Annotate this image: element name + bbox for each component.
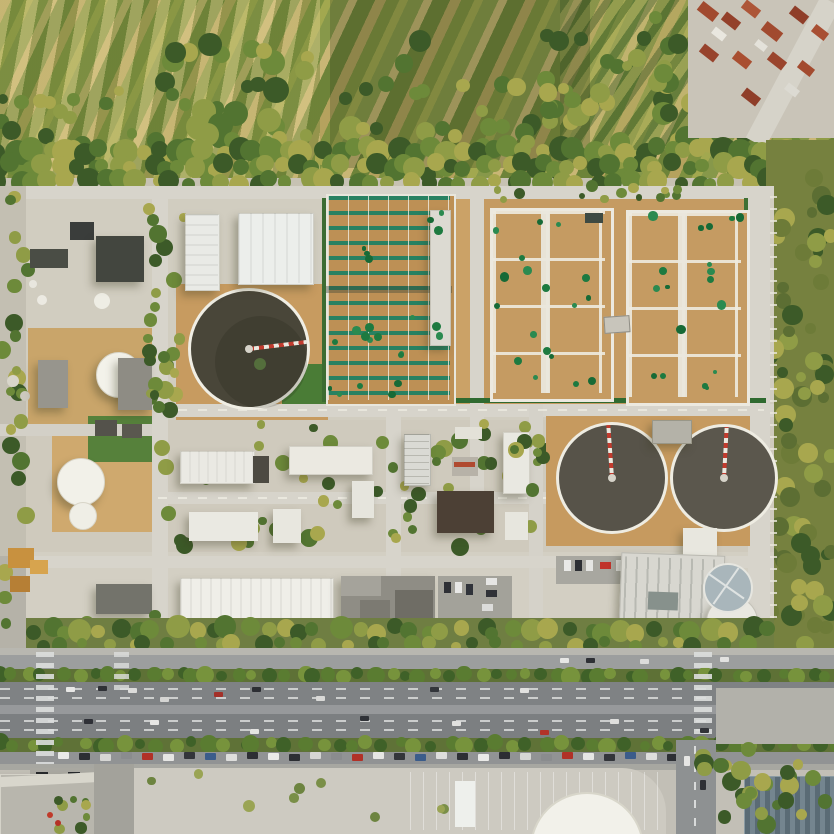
- small-tank: [20, 391, 30, 401]
- parked-car: [586, 560, 593, 571]
- tree: [370, 122, 383, 135]
- crosswalk: [36, 652, 54, 764]
- basin-vegetation: [698, 225, 703, 230]
- gray-building: [96, 584, 152, 614]
- parked-car: [58, 752, 69, 759]
- tree: [359, 82, 373, 96]
- parked-car: [482, 604, 493, 611]
- tree: [532, 434, 546, 448]
- tree: [514, 188, 525, 199]
- basin-vegetation: [439, 210, 445, 216]
- basin-vegetation: [494, 303, 500, 309]
- basin-vegetation: [432, 322, 441, 331]
- tree: [216, 671, 226, 681]
- tree: [754, 773, 771, 790]
- basin-vegetation: [713, 370, 717, 374]
- car: [250, 729, 259, 734]
- tree: [636, 194, 642, 200]
- tree: [388, 668, 400, 680]
- industrial-unit: [30, 560, 48, 574]
- flower-bed: [55, 820, 61, 826]
- filter-basin-corridor: [678, 213, 687, 397]
- basin-vegetation: [660, 373, 666, 379]
- parking-lot: [716, 688, 834, 744]
- white-roof-building: [273, 509, 301, 543]
- tree: [586, 180, 598, 192]
- tree: [540, 101, 558, 119]
- clarifier-hub: [720, 474, 728, 482]
- tree: [425, 741, 436, 752]
- car: [720, 657, 729, 662]
- tree: [89, 139, 107, 157]
- tree: [604, 668, 615, 679]
- basin-vegetation: [436, 332, 443, 339]
- tree: [75, 822, 86, 833]
- tree: [196, 666, 214, 684]
- basin-vegetation: [361, 332, 370, 341]
- tree: [149, 225, 166, 242]
- dark-roof-building: [30, 249, 68, 268]
- tree: [554, 735, 569, 750]
- tree: [622, 61, 632, 71]
- parked-car: [457, 753, 468, 760]
- dark-roof-building: [70, 222, 94, 240]
- tree: [506, 740, 519, 753]
- car: [98, 686, 107, 691]
- tree: [1, 618, 11, 628]
- tree: [741, 742, 756, 757]
- parked-car: [625, 752, 636, 759]
- tree: [579, 193, 585, 199]
- tree: [777, 367, 788, 378]
- tree: [43, 96, 56, 109]
- tree: [814, 480, 831, 497]
- parked-car: [486, 590, 497, 597]
- tree: [377, 637, 389, 649]
- tree: [194, 769, 204, 779]
- tree: [305, 622, 319, 636]
- white-roof-building: [505, 512, 528, 540]
- parked-car: [564, 560, 571, 571]
- satellite-dish: [37, 295, 47, 305]
- road: [94, 764, 134, 834]
- tree: [358, 735, 372, 749]
- parking-ticks: [770, 196, 777, 626]
- basin-dark-unit: [585, 213, 603, 223]
- tree: [456, 79, 469, 92]
- tree: [67, 93, 80, 106]
- car: [66, 687, 75, 692]
- tree: [824, 449, 834, 463]
- storage-dome: [94, 293, 110, 309]
- tree: [807, 207, 818, 218]
- basin-vegetation: [648, 211, 657, 220]
- tree: [571, 737, 585, 751]
- car: [316, 696, 325, 701]
- tree: [617, 737, 631, 751]
- lot-white-structure: [455, 781, 475, 827]
- basin-vegetation: [398, 352, 404, 358]
- parked-car: [575, 560, 582, 571]
- basin-bridge: [603, 315, 630, 334]
- car: [610, 719, 619, 724]
- roof-ridges: [185, 214, 218, 289]
- tree: [318, 739, 330, 751]
- tree: [395, 54, 413, 72]
- tree: [780, 487, 800, 507]
- tree: [391, 533, 401, 543]
- tree: [7, 279, 21, 293]
- parked-car: [247, 752, 258, 759]
- basin-vegetation: [388, 391, 395, 398]
- clarifier-algae: [254, 358, 266, 370]
- tree: [166, 88, 179, 101]
- storage-dome: [57, 458, 105, 506]
- tree: [454, 161, 470, 177]
- satellite-dish: [29, 280, 37, 288]
- tree: [143, 334, 153, 344]
- parked-car: [646, 753, 657, 760]
- parked-car: [604, 754, 615, 761]
- white-roof-building: [189, 512, 258, 541]
- tree: [648, 137, 665, 154]
- pump-building: [652, 420, 692, 444]
- tree: [309, 424, 317, 432]
- tree: [318, 495, 329, 506]
- basin-vegetation: [332, 339, 338, 345]
- tree: [256, 43, 272, 59]
- tree: [454, 620, 470, 636]
- tree: [777, 282, 788, 293]
- basin-vegetation: [362, 246, 366, 250]
- tree: [798, 443, 817, 462]
- tree: [91, 625, 105, 639]
- tree: [689, 139, 707, 157]
- tree: [356, 122, 369, 135]
- tree: [487, 734, 503, 750]
- car: [360, 716, 369, 721]
- parked-car: [455, 582, 462, 593]
- clarifier-hub: [608, 474, 616, 482]
- tree: [599, 636, 610, 647]
- tree: [403, 512, 412, 521]
- car: [640, 659, 649, 664]
- basin-vegetation: [659, 267, 667, 275]
- car: [452, 721, 461, 726]
- tree: [299, 474, 307, 482]
- tree: [757, 669, 771, 683]
- tree: [16, 247, 31, 262]
- tree: [147, 667, 162, 682]
- tree: [805, 323, 816, 334]
- car: [700, 728, 709, 733]
- tree: [673, 185, 682, 194]
- tree: [488, 159, 501, 172]
- brown-roof-building: [437, 491, 494, 533]
- storage-dome: [69, 502, 97, 530]
- industrial-unit: [10, 576, 30, 592]
- car: [430, 687, 439, 692]
- tree: [127, 128, 138, 139]
- roof-ridges: [238, 213, 312, 283]
- tree: [731, 761, 750, 780]
- white-roof-building: [683, 528, 717, 556]
- basin-vegetation: [493, 227, 500, 234]
- parked-car: [121, 752, 132, 759]
- parked-car: [289, 754, 300, 761]
- basin-vegetation: [427, 217, 433, 223]
- tree: [695, 159, 708, 172]
- dark-roof-building: [253, 456, 269, 483]
- basin-vegetation: [707, 268, 714, 275]
- glass-tower-grid: [404, 434, 429, 484]
- tree: [258, 517, 267, 526]
- tree: [321, 667, 336, 682]
- basin-vegetation: [653, 285, 660, 292]
- tree: [637, 31, 651, 45]
- tree: [70, 796, 77, 803]
- basin-vegetation: [537, 219, 543, 225]
- tree: [80, 738, 91, 749]
- parked-car: [486, 578, 497, 585]
- tree: [599, 154, 620, 175]
- parked-car: [226, 754, 237, 761]
- flower-bed: [47, 812, 53, 818]
- car: [540, 730, 549, 735]
- parked-car: [331, 753, 342, 760]
- tree: [100, 666, 116, 682]
- tree: [2, 121, 21, 140]
- tree: [782, 305, 802, 325]
- tree: [5, 195, 15, 205]
- clarifier-hub: [245, 345, 253, 353]
- parked-car: [478, 754, 489, 761]
- tree: [117, 735, 134, 752]
- tree: [198, 33, 221, 56]
- tree: [819, 671, 830, 682]
- white-roof-building: [289, 446, 373, 475]
- basin-vegetation: [573, 381, 579, 387]
- parked-car: [600, 562, 611, 569]
- tree: [416, 84, 430, 98]
- tree: [781, 433, 797, 449]
- car: [560, 658, 569, 663]
- basin-vegetation: [676, 325, 685, 334]
- tree: [83, 813, 90, 820]
- tree: [526, 483, 540, 497]
- tree: [114, 86, 124, 96]
- basin-vegetation: [364, 251, 369, 256]
- tree: [233, 159, 249, 175]
- tree: [813, 595, 833, 615]
- parked-car: [373, 752, 384, 759]
- tree: [534, 668, 547, 681]
- tree: [257, 420, 266, 429]
- tree: [586, 739, 598, 751]
- parked-car: [499, 752, 510, 759]
- tree: [183, 668, 198, 683]
- tree: [507, 78, 525, 96]
- tree: [660, 669, 671, 680]
- tree: [494, 186, 501, 193]
- tree: [818, 794, 832, 808]
- parked-car: [415, 754, 426, 761]
- basin-vegetation: [665, 285, 669, 289]
- car: [586, 658, 595, 663]
- parked-car: [268, 753, 279, 760]
- tree: [12, 452, 30, 470]
- tree: [798, 387, 811, 400]
- tree: [778, 792, 794, 808]
- tree: [374, 739, 387, 752]
- tree: [331, 154, 349, 172]
- tree: [563, 622, 577, 636]
- tree: [4, 440, 15, 451]
- tree: [57, 667, 71, 681]
- tree: [165, 42, 185, 62]
- red-roof-detail: [454, 462, 475, 467]
- filter-basin-corridor: [541, 211, 550, 393]
- office-roof-section: [648, 591, 679, 610]
- tree: [573, 156, 587, 170]
- basin-vegetation: [702, 383, 707, 388]
- basin-vegetation: [572, 303, 577, 308]
- tree: [233, 668, 247, 682]
- tree: [166, 272, 182, 288]
- parked-car: [352, 754, 363, 761]
- tree: [409, 30, 431, 52]
- tree: [216, 738, 231, 753]
- crosswalk: [694, 652, 712, 740]
- car: [520, 688, 529, 693]
- tree: [451, 538, 469, 556]
- tree: [278, 669, 291, 682]
- parked-car: [394, 753, 405, 760]
- parked-car: [541, 754, 552, 761]
- car: [700, 780, 706, 790]
- basin-vegetation: [588, 377, 596, 385]
- tree: [783, 326, 794, 337]
- car: [214, 692, 223, 697]
- tree: [791, 595, 807, 611]
- tree: [174, 333, 185, 344]
- tree: [153, 401, 165, 413]
- tree: [813, 274, 829, 290]
- tree: [520, 668, 530, 678]
- parked-car: [205, 753, 216, 760]
- tree: [755, 807, 768, 820]
- tree: [540, 29, 553, 42]
- basin-vegetation: [706, 223, 713, 230]
- tree: [807, 617, 823, 633]
- tree: [54, 796, 63, 805]
- tree: [166, 615, 189, 638]
- tree: [242, 735, 259, 752]
- parked-car: [436, 752, 447, 759]
- parked-car: [444, 582, 451, 593]
- parked-car: [583, 753, 594, 760]
- parked-car: [100, 754, 111, 761]
- tree: [539, 83, 557, 101]
- tree: [780, 765, 795, 780]
- tree: [112, 619, 130, 637]
- tree: [339, 92, 352, 105]
- tree: [804, 464, 823, 483]
- tree: [824, 545, 834, 559]
- tree: [10, 330, 22, 342]
- tree: [663, 741, 673, 751]
- tree: [289, 793, 298, 802]
- tree: [807, 233, 826, 252]
- tree: [170, 368, 179, 377]
- dark-shed: [122, 424, 142, 438]
- tree: [443, 670, 455, 682]
- parked-car: [184, 752, 195, 759]
- roof-ridges: [180, 451, 253, 482]
- tree: [404, 499, 417, 512]
- tree: [600, 195, 609, 204]
- tree: [668, 34, 688, 54]
- gray-building-section: [341, 576, 381, 596]
- tree: [697, 762, 712, 777]
- tree: [518, 737, 531, 750]
- tree: [185, 157, 205, 177]
- parked-car: [466, 584, 473, 595]
- tree: [263, 77, 289, 103]
- white-roof-building: [352, 481, 374, 518]
- car: [684, 756, 690, 766]
- basin-vegetation: [519, 255, 525, 261]
- parked-car: [163, 754, 174, 761]
- tree: [388, 462, 399, 473]
- tree: [736, 793, 752, 809]
- gray-building: [118, 358, 152, 410]
- tree: [158, 459, 173, 474]
- tree: [510, 445, 519, 454]
- car: [84, 719, 93, 724]
- tree: [276, 737, 292, 753]
- parked-car: [520, 753, 531, 760]
- tree: [564, 92, 580, 108]
- tree: [713, 758, 728, 773]
- tree: [574, 32, 588, 46]
- dark-roof-building: [96, 236, 144, 282]
- dark-shed: [95, 420, 117, 436]
- parked-car: [79, 753, 90, 760]
- basin-vegetation: [556, 222, 561, 227]
- tree: [99, 97, 112, 110]
- tree: [558, 83, 569, 94]
- tree: [805, 770, 821, 786]
- tree: [817, 195, 834, 215]
- tree: [330, 616, 353, 639]
- parked-car: [310, 752, 321, 759]
- basin-vegetation: [374, 333, 382, 341]
- tree: [17, 507, 34, 524]
- tree: [213, 153, 233, 173]
- tree: [456, 666, 471, 681]
- gray-building: [38, 360, 68, 408]
- parked-car: [142, 753, 153, 760]
- basin-vegetation: [434, 226, 443, 235]
- tree: [4, 667, 17, 680]
- basin-vegetation: [530, 331, 537, 338]
- car: [128, 688, 137, 693]
- basin-vegetation: [394, 380, 401, 387]
- tree: [14, 95, 28, 109]
- tree: [254, 441, 264, 451]
- car: [160, 697, 169, 702]
